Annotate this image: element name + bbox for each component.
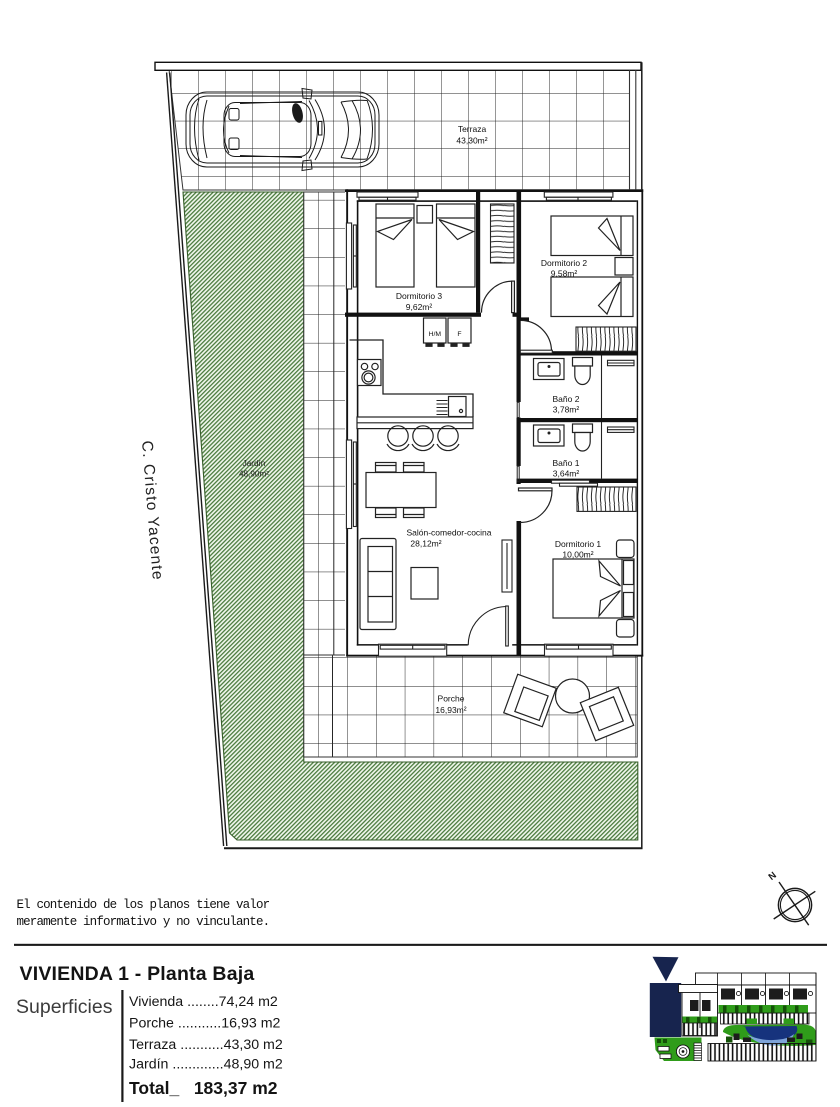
svg-text:9,58m²: 9,58m² bbox=[551, 269, 578, 279]
svg-text:meramente informativo y no vin: meramente informativo y no vinculante. bbox=[17, 915, 270, 929]
svg-text:48,90m²: 48,90m² bbox=[239, 470, 269, 479]
svg-text:Superficies: Superficies bbox=[16, 996, 113, 1018]
svg-text:Baño 2: Baño 2 bbox=[553, 394, 580, 404]
svg-text:Dormitorio 1: Dormitorio 1 bbox=[555, 539, 602, 549]
svg-text:Terraza: Terraza bbox=[458, 124, 487, 134]
svg-text:Porche: Porche bbox=[438, 694, 465, 704]
svg-text:10,00m²: 10,00m² bbox=[562, 550, 593, 560]
svg-text:28,12m²: 28,12m² bbox=[410, 539, 441, 549]
svg-text:Dormitorio 2: Dormitorio 2 bbox=[541, 258, 588, 268]
svg-text:3,78m²: 3,78m² bbox=[553, 405, 580, 415]
svg-text:H/M: H/M bbox=[429, 331, 442, 338]
svg-text:Dormitorio 3: Dormitorio 3 bbox=[396, 291, 443, 301]
svg-text:3,64m²: 3,64m² bbox=[553, 469, 580, 479]
svg-text:Vivienda ........74,24 m2: Vivienda ........74,24 m2 bbox=[129, 994, 278, 1010]
svg-text:Jardín .............48,90 m2: Jardín .............48,90 m2 bbox=[129, 1057, 283, 1073]
svg-text:16,93m²: 16,93m² bbox=[435, 705, 466, 715]
svg-text:43,30m²: 43,30m² bbox=[456, 136, 487, 146]
svg-text:Salón-comedor-cocina: Salón-comedor-cocina bbox=[406, 528, 491, 538]
svg-text:Terraza ...........43,30 m2: Terraza ...........43,30 m2 bbox=[129, 1037, 283, 1053]
svg-text:Total_ 183,37 m2: Total_ 183,37 m2 bbox=[129, 1078, 278, 1098]
svg-text:El contenido de los planos tie: El contenido de los planos tiene valor bbox=[17, 898, 270, 912]
svg-text:Jardín: Jardín bbox=[243, 459, 266, 468]
svg-text:VIVIENDA 1 - Planta Baja: VIVIENDA 1 - Planta Baja bbox=[20, 963, 255, 985]
svg-text:9,62m²: 9,62m² bbox=[406, 302, 433, 312]
svg-text:Baño 1: Baño 1 bbox=[553, 458, 580, 468]
svg-text:Porche ...........16,93 m2: Porche ...........16,93 m2 bbox=[129, 1016, 281, 1032]
svg-text:F: F bbox=[457, 331, 461, 338]
